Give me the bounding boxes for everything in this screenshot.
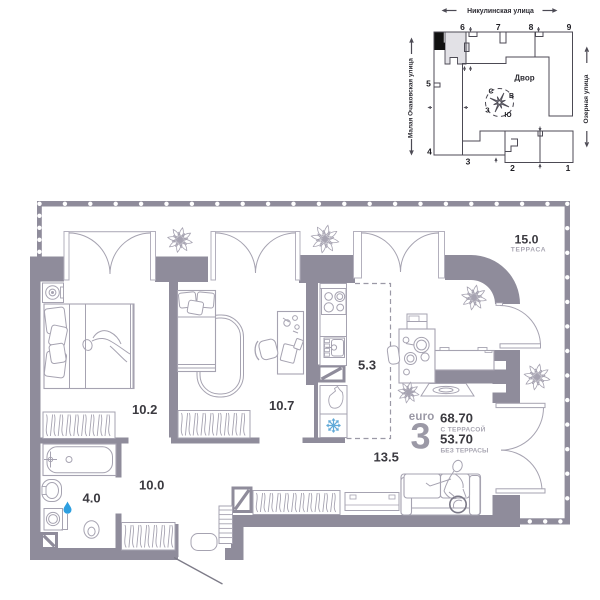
svg-text:4: 4 xyxy=(427,147,432,157)
svg-text:13.5: 13.5 xyxy=(374,450,399,465)
svg-text:Никулинская улица: Никулинская улица xyxy=(467,8,534,15)
svg-text:З: З xyxy=(485,108,490,115)
svg-text:5.3: 5.3 xyxy=(358,358,376,373)
svg-text:БЕЗ ТЕРРАСЫ: БЕЗ ТЕРРАСЫ xyxy=(441,448,489,455)
svg-text:В: В xyxy=(509,93,514,100)
svg-text:4.0: 4.0 xyxy=(83,491,101,506)
svg-text:2: 2 xyxy=(510,163,515,173)
svg-text:10.0: 10.0 xyxy=(139,478,164,493)
svg-text:1: 1 xyxy=(566,163,571,173)
svg-text:С: С xyxy=(488,89,493,96)
svg-text:8: 8 xyxy=(529,22,534,32)
svg-text:53.70: 53.70 xyxy=(440,432,473,447)
svg-text:3: 3 xyxy=(410,416,430,457)
svg-text:ТЕРРАСА: ТЕРРАСА xyxy=(511,246,547,253)
svg-text:9: 9 xyxy=(567,22,572,32)
svg-text:Малая Очаковская улица: Малая Очаковская улица xyxy=(408,58,415,138)
svg-text:3: 3 xyxy=(466,157,471,167)
svg-text:10.7: 10.7 xyxy=(269,398,294,413)
svg-text:10.2: 10.2 xyxy=(132,402,157,417)
svg-text:5: 5 xyxy=(426,79,431,89)
svg-text:Озерная улица: Озерная улица xyxy=(583,74,590,123)
svg-text:Ю: Ю xyxy=(504,112,511,119)
svg-text:68.70: 68.70 xyxy=(440,411,473,426)
svg-text:Двор: Двор xyxy=(514,74,534,83)
svg-text:6: 6 xyxy=(460,22,465,32)
svg-text:7: 7 xyxy=(496,22,501,32)
svg-text:15.0: 15.0 xyxy=(515,232,539,246)
